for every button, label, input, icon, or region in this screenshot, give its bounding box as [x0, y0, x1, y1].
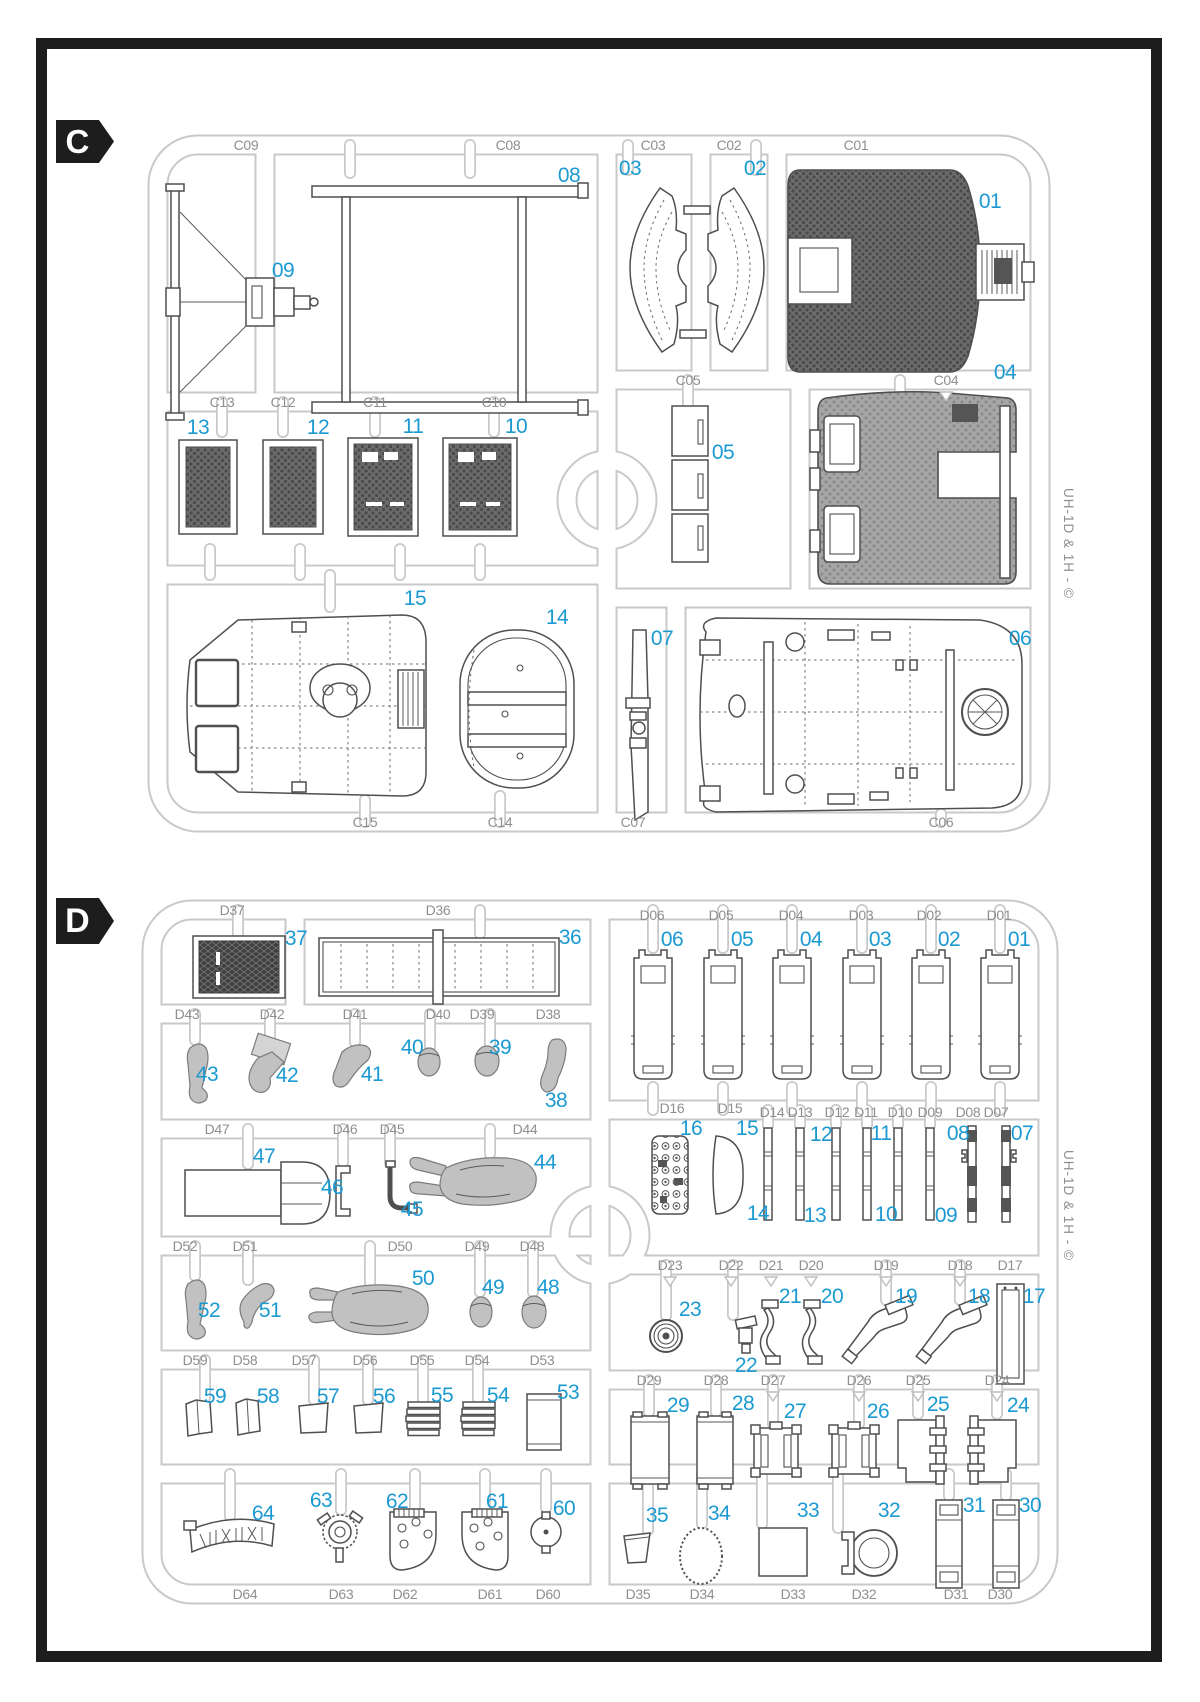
part-d-20 — [802, 1300, 822, 1364]
part-c-08 — [312, 183, 588, 415]
part-number-d-53: 53 — [557, 1381, 579, 1404]
gate-label-C04: C04 — [934, 372, 959, 388]
gate-marker-D21 — [765, 1277, 777, 1286]
part-number-c-05: 05 — [712, 441, 734, 464]
part-number-d-41: 41 — [361, 1063, 383, 1086]
part-number-d-46: 46 — [321, 1176, 343, 1199]
part-number-d-28: 28 — [732, 1392, 754, 1415]
part-d-21 — [760, 1300, 780, 1364]
part-number-d-54: 54 — [487, 1384, 510, 1407]
gate-label-D42: D42 — [260, 1006, 285, 1022]
kit-code-vertical-d: UH-1D & 1H - © — [1061, 1150, 1076, 1261]
part-c-06 — [700, 618, 1022, 812]
gate-label-D29: D29 — [637, 1372, 662, 1388]
part-c-12 — [263, 440, 323, 534]
gate-label-D12: D12 — [825, 1104, 850, 1120]
part-number-d-44: 44 — [534, 1151, 557, 1174]
part-d-38 — [541, 1039, 566, 1092]
part-number-c-10: 10 — [505, 415, 527, 438]
part-c-09 — [166, 184, 318, 420]
part-number-d-33: 33 — [797, 1499, 819, 1522]
part-number-d-16: 16 — [680, 1117, 702, 1140]
part-number-d-55: 55 — [431, 1384, 453, 1407]
part-number-d-26: 26 — [867, 1400, 889, 1423]
gate-label-D43: D43 — [175, 1006, 200, 1022]
part-d-16 — [652, 1136, 688, 1214]
part-number-d-38: 38 — [545, 1089, 567, 1112]
part-d-30 — [993, 1500, 1019, 1588]
part-d-63 — [317, 1511, 362, 1562]
part-d-rods-09-14 — [764, 1128, 934, 1220]
gate-label-D40: D40 — [426, 1006, 451, 1022]
part-number-d-50: 50 — [412, 1267, 434, 1290]
part-number-d-60: 60 — [553, 1497, 575, 1520]
part-number-d-36: 36 — [559, 926, 581, 949]
gate-label-D13: D13 — [788, 1104, 813, 1120]
gate-label-D63: D63 — [329, 1586, 354, 1602]
part-number-d-02: 02 — [938, 928, 960, 951]
gate-label-D07: D07 — [984, 1104, 1009, 1120]
gate-label-C06: C06 — [929, 814, 954, 830]
part-number-d-39: 39 — [489, 1036, 511, 1059]
part-number-d-27: 27 — [784, 1400, 806, 1423]
gate-label-D22: D22 — [719, 1257, 744, 1273]
gate-label-D15: D15 — [718, 1100, 743, 1116]
part-number-c-12: 12 — [307, 416, 329, 439]
gate-label-D54: D54 — [465, 1352, 490, 1368]
part-number-d-21: 21 — [779, 1285, 801, 1308]
part-d-48 — [522, 1296, 546, 1328]
part-number-d-22: 22 — [735, 1354, 757, 1377]
part-d-55 — [406, 1402, 440, 1436]
part-number-d-03: 03 — [869, 928, 891, 951]
part-number-d-17: 17 — [1023, 1285, 1045, 1308]
part-number-d-24: 24 — [1007, 1394, 1030, 1417]
part-number-d-23: 23 — [679, 1298, 701, 1321]
gate-label-D61: D61 — [478, 1586, 503, 1602]
gate-label-D23: D23 — [658, 1257, 683, 1273]
part-number-c-14: 14 — [546, 606, 569, 629]
part-d-49 — [470, 1297, 492, 1327]
gate-label-D39: D39 — [470, 1006, 495, 1022]
gate-label-D05: D05 — [709, 907, 734, 923]
part-number-d-14: 14 — [747, 1202, 770, 1225]
gate-marker-D20 — [805, 1277, 817, 1286]
gate-label-D24: D24 — [985, 1372, 1010, 1388]
part-d-17 — [997, 1284, 1024, 1384]
part-c-02 — [708, 188, 764, 352]
part-d-23 — [650, 1320, 682, 1352]
part-number-d-09: 09 — [935, 1204, 957, 1227]
gate-label-D33: D33 — [781, 1586, 806, 1602]
part-number-c-03: 03 — [619, 157, 641, 180]
gate-label-D35: D35 — [626, 1586, 651, 1602]
part-number-d-48: 48 — [537, 1276, 559, 1299]
gate-label-D26: D26 — [847, 1372, 872, 1388]
gate-label-D38: D38 — [536, 1006, 561, 1022]
gate-label-D02: D02 — [917, 907, 942, 923]
part-number-c-08: 08 — [558, 164, 580, 187]
gate-label-D48: D48 — [520, 1238, 545, 1254]
part-number-d-52: 52 — [198, 1299, 220, 1322]
part-number-c-15: 15 — [404, 587, 426, 610]
part-number-d-56: 56 — [373, 1385, 395, 1408]
gate-label-D28: D28 — [704, 1372, 729, 1388]
gate-label-D04: D04 — [779, 907, 804, 923]
gate-label-D58: D58 — [233, 1352, 258, 1368]
gate-label-D16: D16 — [660, 1100, 685, 1116]
part-c-11 — [348, 438, 418, 536]
gate-label-D17: D17 — [998, 1257, 1023, 1273]
part-number-d-11: 11 — [871, 1122, 892, 1145]
part-d-37 — [193, 936, 285, 998]
part-d-44 — [410, 1158, 537, 1206]
part-number-d-40: 40 — [401, 1036, 423, 1059]
part-d-27 — [751, 1422, 801, 1477]
part-d-32 — [842, 1530, 897, 1576]
gate-label-C01: C01 — [844, 137, 869, 153]
part-number-c-04: 04 — [994, 361, 1017, 384]
part-c-04 — [810, 392, 1016, 584]
part-number-d-34: 34 — [708, 1502, 731, 1525]
part-number-d-59: 59 — [204, 1385, 226, 1408]
part-number-d-63: 63 — [310, 1489, 332, 1512]
part-d-35 — [624, 1533, 650, 1563]
part-number-c-13: 13 — [187, 416, 209, 439]
gate-label-C07: C07 — [621, 814, 646, 830]
part-number-d-51: 51 — [259, 1299, 281, 1322]
part-number-c-01: 01 — [979, 190, 1001, 213]
gate-label-D27: D27 — [761, 1372, 786, 1388]
part-number-d-06: 06 — [661, 928, 683, 951]
part-number-d-13: 13 — [804, 1204, 826, 1227]
sprue-diagram: C09C08C03C02C01C13C12C11C10C05C04C15C14C… — [0, 0, 1200, 1702]
gate-label-D60: D60 — [536, 1586, 561, 1602]
gate-label-C08: C08 — [496, 137, 521, 153]
part-number-d-07: 07 — [1011, 1122, 1033, 1145]
gate-label-D45: D45 — [380, 1121, 405, 1137]
part-d-61 — [462, 1509, 508, 1570]
part-d-47 — [185, 1162, 330, 1224]
part-number-d-01: 01 — [1008, 928, 1030, 951]
part-number-d-32: 32 — [878, 1499, 900, 1522]
gate-label-D47: D47 — [205, 1121, 230, 1137]
part-number-d-35: 35 — [646, 1504, 668, 1527]
gate-label-D31: D31 — [944, 1586, 969, 1602]
part-number-d-43: 43 — [196, 1063, 218, 1086]
part-number-d-18: 18 — [968, 1285, 990, 1308]
gate-label-D55: D55 — [410, 1352, 435, 1368]
gate-label-D03: D03 — [849, 907, 874, 923]
gate-label-D44: D44 — [513, 1121, 538, 1137]
gate-label-D09: D09 — [918, 1104, 943, 1120]
gate-label-D37: D37 — [220, 902, 245, 918]
part-number-d-42: 42 — [276, 1064, 298, 1087]
gate-label-D14: D14 — [760, 1104, 785, 1120]
gate-label-C13: C13 — [210, 394, 235, 410]
part-number-d-62: 62 — [386, 1490, 408, 1513]
gate-label-D34: D34 — [690, 1586, 715, 1602]
part-number-c-11: 11 — [403, 415, 424, 438]
gate-label-C05: C05 — [676, 372, 701, 388]
part-number-d-30: 30 — [1019, 1494, 1041, 1517]
part-d-rails-01-06 — [631, 950, 1022, 1079]
gate-label-D52: D52 — [173, 1238, 198, 1254]
gate-label-D18: D18 — [948, 1257, 973, 1273]
part-number-d-45: 45 — [401, 1198, 423, 1221]
kit-code-vertical-c: UH-1D & 1H - © — [1061, 488, 1076, 599]
part-number-d-47: 47 — [253, 1145, 275, 1168]
part-number-d-08: 08 — [947, 1122, 969, 1145]
part-number-d-20: 20 — [821, 1285, 843, 1308]
gate-label-D56: D56 — [353, 1352, 378, 1368]
gate-label-C15: C15 — [353, 814, 378, 830]
part-c-05 — [672, 406, 708, 562]
gate-label-D19: D19 — [874, 1257, 899, 1273]
gate-label-D64: D64 — [233, 1586, 258, 1602]
part-c-15 — [187, 615, 426, 796]
gate-label-C14: C14 — [488, 814, 513, 830]
gate-label-D50: D50 — [388, 1238, 413, 1254]
part-number-d-04: 04 — [800, 928, 823, 951]
part-d-31 — [936, 1500, 962, 1588]
gate-label-D53: D53 — [530, 1352, 555, 1368]
gate-label-D59: D59 — [183, 1352, 208, 1368]
part-number-c-06: 06 — [1009, 627, 1031, 650]
part-number-c-09: 09 — [272, 259, 294, 282]
instruction-sheet-page: C D — [0, 0, 1200, 1702]
part-d-54 — [461, 1402, 495, 1436]
gate-label-D20: D20 — [799, 1257, 824, 1273]
part-number-d-31: 31 — [963, 1494, 985, 1517]
gate-label-D08: D08 — [956, 1104, 981, 1120]
part-d-28 — [697, 1412, 733, 1489]
part-d-15 — [713, 1136, 743, 1214]
part-c-07 — [626, 630, 650, 820]
gate-label-D49: D49 — [465, 1238, 490, 1254]
gate-label-D36: D36 — [426, 902, 451, 918]
part-d-33 — [759, 1528, 807, 1576]
part-d-26 — [829, 1422, 879, 1477]
gate-label-D25: D25 — [906, 1372, 931, 1388]
part-number-d-64: 64 — [252, 1502, 275, 1525]
gate-label-C02: C02 — [717, 137, 742, 153]
gate-label-D11: D11 — [854, 1104, 878, 1120]
gate-label-D51: D51 — [233, 1238, 258, 1254]
part-d-62 — [390, 1509, 436, 1570]
part-number-d-58: 58 — [257, 1385, 279, 1408]
part-c-10 — [443, 438, 517, 536]
part-c-13 — [179, 440, 237, 534]
gate-label-C12: C12 — [271, 394, 296, 410]
part-number-d-37: 37 — [285, 927, 307, 950]
part-number-d-05: 05 — [731, 928, 753, 951]
part-number-d-19: 19 — [895, 1285, 917, 1308]
part-d-22 — [735, 1316, 756, 1353]
gate-label-D10: D10 — [888, 1104, 913, 1120]
gate-label-D32: D32 — [852, 1586, 877, 1602]
gate-label-C03: C03 — [641, 137, 666, 153]
part-c-14 — [460, 630, 574, 788]
gate-label-D57: D57 — [292, 1352, 317, 1368]
part-d-50 — [309, 1285, 428, 1335]
gate-label-C10: C10 — [482, 394, 507, 410]
gate-label-D06: D06 — [640, 907, 665, 923]
gate-label-C09: C09 — [234, 137, 259, 153]
part-number-d-49: 49 — [482, 1276, 504, 1299]
part-number-d-12: 12 — [810, 1123, 832, 1146]
gate-label-D30: D30 — [988, 1586, 1013, 1602]
part-number-d-15: 15 — [736, 1117, 758, 1140]
part-number-d-10: 10 — [875, 1203, 897, 1226]
part-number-c-07: 07 — [651, 627, 673, 650]
gate-label-D46: D46 — [333, 1121, 358, 1137]
part-number-d-61: 61 — [486, 1490, 508, 1513]
gate-label-D01: D01 — [987, 907, 1012, 923]
part-d-34 — [680, 1528, 722, 1584]
part-number-c-02: 02 — [744, 157, 766, 180]
gate-label-D62: D62 — [393, 1586, 418, 1602]
part-number-d-25: 25 — [927, 1393, 949, 1416]
part-number-d-29: 29 — [667, 1394, 689, 1417]
gate-label-D41: D41 — [343, 1006, 368, 1022]
gate-label-D21: D21 — [759, 1257, 784, 1273]
part-number-d-57: 57 — [317, 1385, 339, 1408]
part-d-29 — [631, 1412, 669, 1489]
part-d-36 — [319, 930, 559, 1004]
gate-label-C11: C11 — [363, 394, 387, 410]
